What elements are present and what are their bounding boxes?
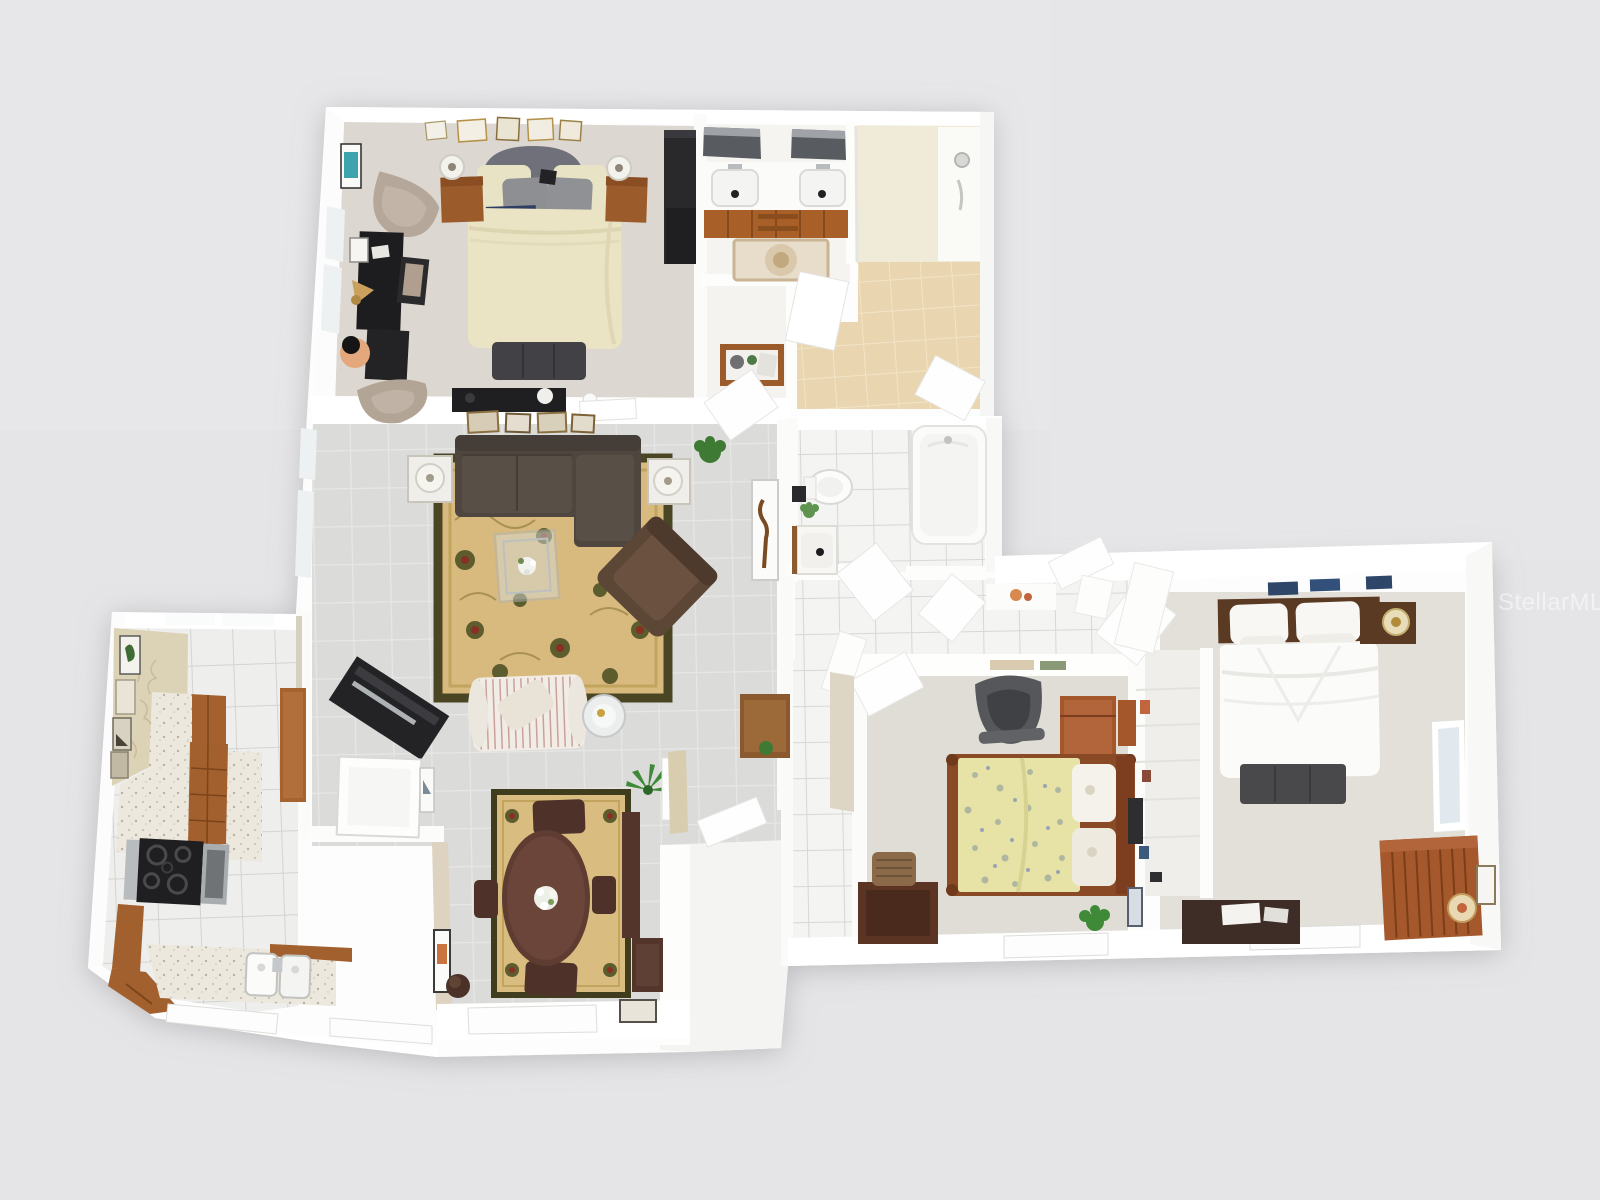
svg-text:StellarMLS: StellarMLS <box>1498 589 1600 616</box>
